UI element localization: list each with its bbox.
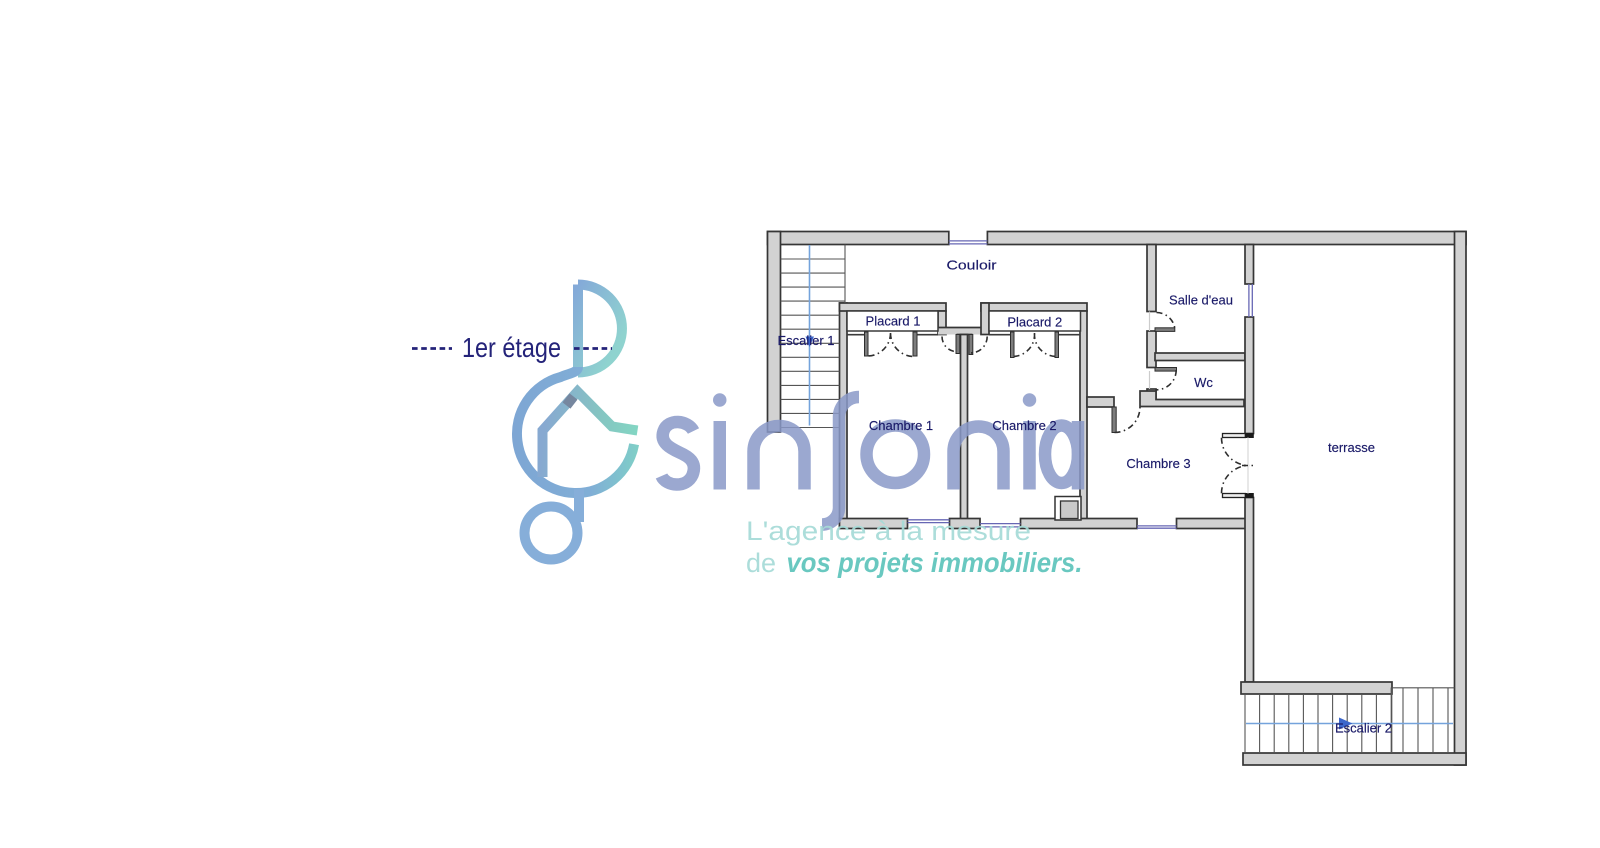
svg-text:Wc: Wc xyxy=(1194,375,1213,390)
svg-text:Couloir: Couloir xyxy=(947,258,998,273)
svg-text:Placard 1: Placard 1 xyxy=(866,314,921,329)
svg-text:Placard 2: Placard 2 xyxy=(1007,315,1062,330)
svg-text:Chambre 3: Chambre 3 xyxy=(1126,456,1190,471)
svg-text:1er étage: 1er étage xyxy=(462,332,561,363)
svg-text:L'agence à la mesure: L'agence à la mesure xyxy=(746,516,1031,546)
svg-text:Escalier 2: Escalier 2 xyxy=(1335,721,1392,736)
svg-text:Chambre 2: Chambre 2 xyxy=(992,418,1056,433)
svg-text:Escalier 1: Escalier 1 xyxy=(777,333,834,348)
svg-text:terrasse: terrasse xyxy=(1328,440,1375,455)
svg-text:de: de xyxy=(746,548,776,578)
svg-text:Chambre 1: Chambre 1 xyxy=(869,418,933,433)
svg-text:Salle d'eau: Salle d'eau xyxy=(1169,293,1233,308)
svg-text:vos projets immobiliers.: vos projets immobiliers. xyxy=(787,547,1083,578)
